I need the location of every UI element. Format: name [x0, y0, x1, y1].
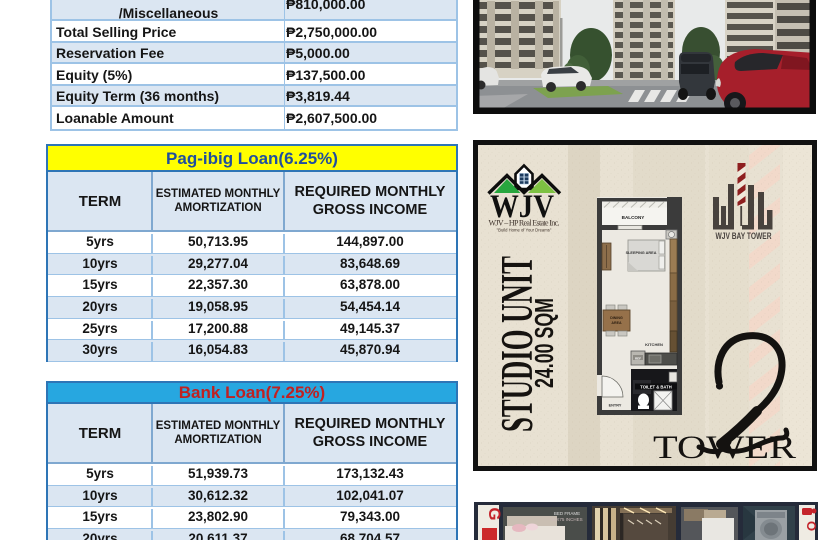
svg-text:O: O	[804, 521, 818, 531]
svg-text:"Build Home of Your Dreams": "Build Home of Your Dreams"	[497, 228, 552, 233]
svg-text:54X75 INCHES: 54X75 INCHES	[551, 517, 582, 522]
svg-text:WJV BAY TOWER: WJV BAY TOWER	[716, 231, 772, 241]
svg-text:TOILET & BATH: TOILET & BATH	[640, 384, 671, 389]
svg-text:24.00 SQM: 24.00 SQM	[529, 298, 559, 388]
svg-text:DINING: DINING	[610, 316, 623, 320]
svg-text:BED FRAME: BED FRAME	[554, 511, 580, 516]
svg-text:SLEEPING AREA: SLEEPING AREA	[626, 251, 657, 255]
svg-text:AREA: AREA	[611, 321, 622, 325]
svg-text:G: G	[485, 507, 504, 520]
svg-text:REF: REF	[635, 356, 641, 360]
svg-text:WJV – HP Real Estate Inc.: WJV – HP Real Estate Inc.	[489, 219, 560, 228]
svg-text:KITCHEN: KITCHEN	[645, 342, 663, 347]
svg-text:ENTRY: ENTRY	[609, 404, 622, 408]
svg-text:BALCONY: BALCONY	[622, 215, 645, 220]
